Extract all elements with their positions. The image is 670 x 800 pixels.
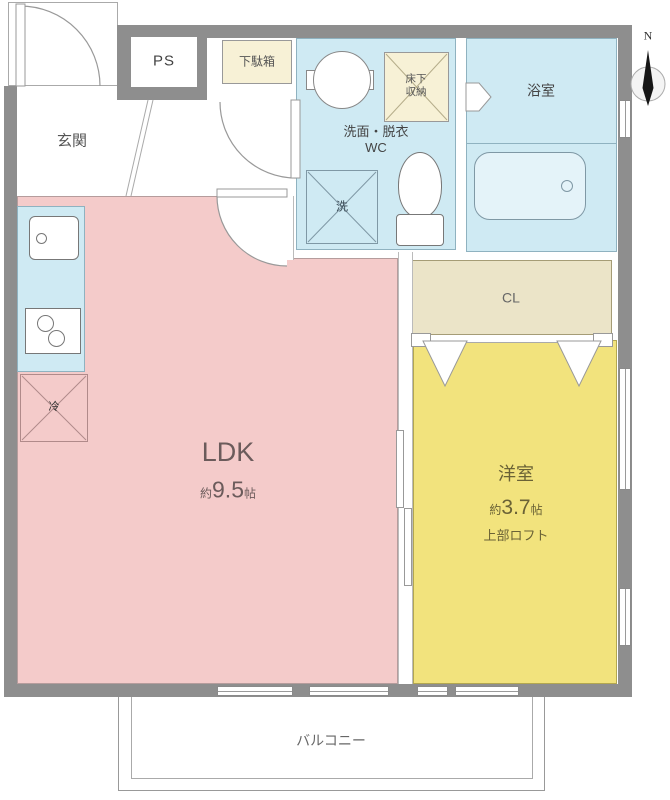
balcony-label: バルコニー bbox=[296, 732, 366, 750]
western-size-label: 約3.7帖 bbox=[489, 495, 542, 521]
door-side-wall bbox=[286, 196, 294, 260]
shoe-cabinet-label: 下駄箱 bbox=[239, 55, 275, 70]
entrance-alcove bbox=[8, 2, 118, 86]
toilet-tank-icon bbox=[396, 214, 444, 246]
ldk-size-label: 約9.5帖 bbox=[200, 476, 256, 505]
underfloor-line2: 収納 bbox=[406, 86, 427, 99]
toilet-icon bbox=[398, 152, 442, 218]
washroom-line2: WC bbox=[343, 140, 408, 156]
window-western-side bbox=[619, 368, 631, 490]
window-ldk-balcony bbox=[309, 686, 389, 696]
western-name-label: 洋室 bbox=[498, 463, 534, 486]
closet-door-track bbox=[411, 335, 613, 343]
western-size-unit: 帖 bbox=[531, 503, 543, 517]
window-western-balcony bbox=[455, 686, 519, 696]
genkan-step-line bbox=[126, 100, 148, 196]
ldk-size-value: 9.5 bbox=[212, 477, 244, 503]
refrigerator-label: 冷 bbox=[49, 401, 60, 415]
washroom-label: 洗面・脱衣 WC bbox=[343, 124, 408, 157]
closet-label: CL bbox=[502, 289, 520, 307]
window-western-balcony bbox=[417, 686, 448, 696]
bathroom-label: 浴室 bbox=[527, 82, 555, 100]
stove-burner-icon bbox=[48, 330, 65, 347]
washer-label: 洗 bbox=[336, 200, 348, 215]
closet-track-end bbox=[593, 333, 613, 347]
western-size-value: 3.7 bbox=[501, 496, 530, 519]
ldk-name-label: LDK bbox=[202, 436, 255, 470]
underfloor-storage-label: 床下 収納 bbox=[406, 73, 427, 99]
western-loft-label: 上部ロフト bbox=[483, 528, 548, 544]
washroom-door-arc bbox=[220, 102, 296, 178]
genkan-step-line bbox=[131, 100, 153, 196]
ldk-size-unit: 帖 bbox=[244, 487, 256, 501]
sink-drain-icon bbox=[36, 233, 47, 244]
window-western-side bbox=[619, 588, 631, 646]
compass-circle-icon bbox=[631, 67, 665, 101]
sliding-door-leaf bbox=[396, 430, 404, 508]
washroom-line1: 洗面・脱衣 bbox=[343, 124, 408, 140]
genkan-label: 玄関 bbox=[57, 133, 87, 152]
wall-left bbox=[4, 86, 17, 697]
sliding-door-leaf bbox=[404, 508, 412, 586]
basin-icon bbox=[313, 51, 371, 109]
ps-label: PS bbox=[153, 53, 175, 72]
ldk-size-prefix: 約 bbox=[200, 487, 212, 501]
stove-burner-icon bbox=[37, 315, 54, 332]
underfloor-line1: 床下 bbox=[406, 73, 427, 86]
compass-needle-icon bbox=[643, 50, 654, 106]
compass-n-label: N bbox=[644, 29, 653, 44]
window-bathroom bbox=[619, 100, 631, 138]
window-ldk-balcony bbox=[217, 686, 293, 696]
western-size-prefix: 約 bbox=[489, 503, 501, 517]
bathtub-drain-icon bbox=[561, 180, 573, 192]
bathroom-floor-line bbox=[467, 143, 616, 144]
floor-plan: PS 下駄箱 玄関 床下 収納 洗面・脱衣 WC 洗 浴室 CL 冷 LDK 約… bbox=[0, 0, 670, 800]
closet-track-end bbox=[411, 333, 431, 347]
